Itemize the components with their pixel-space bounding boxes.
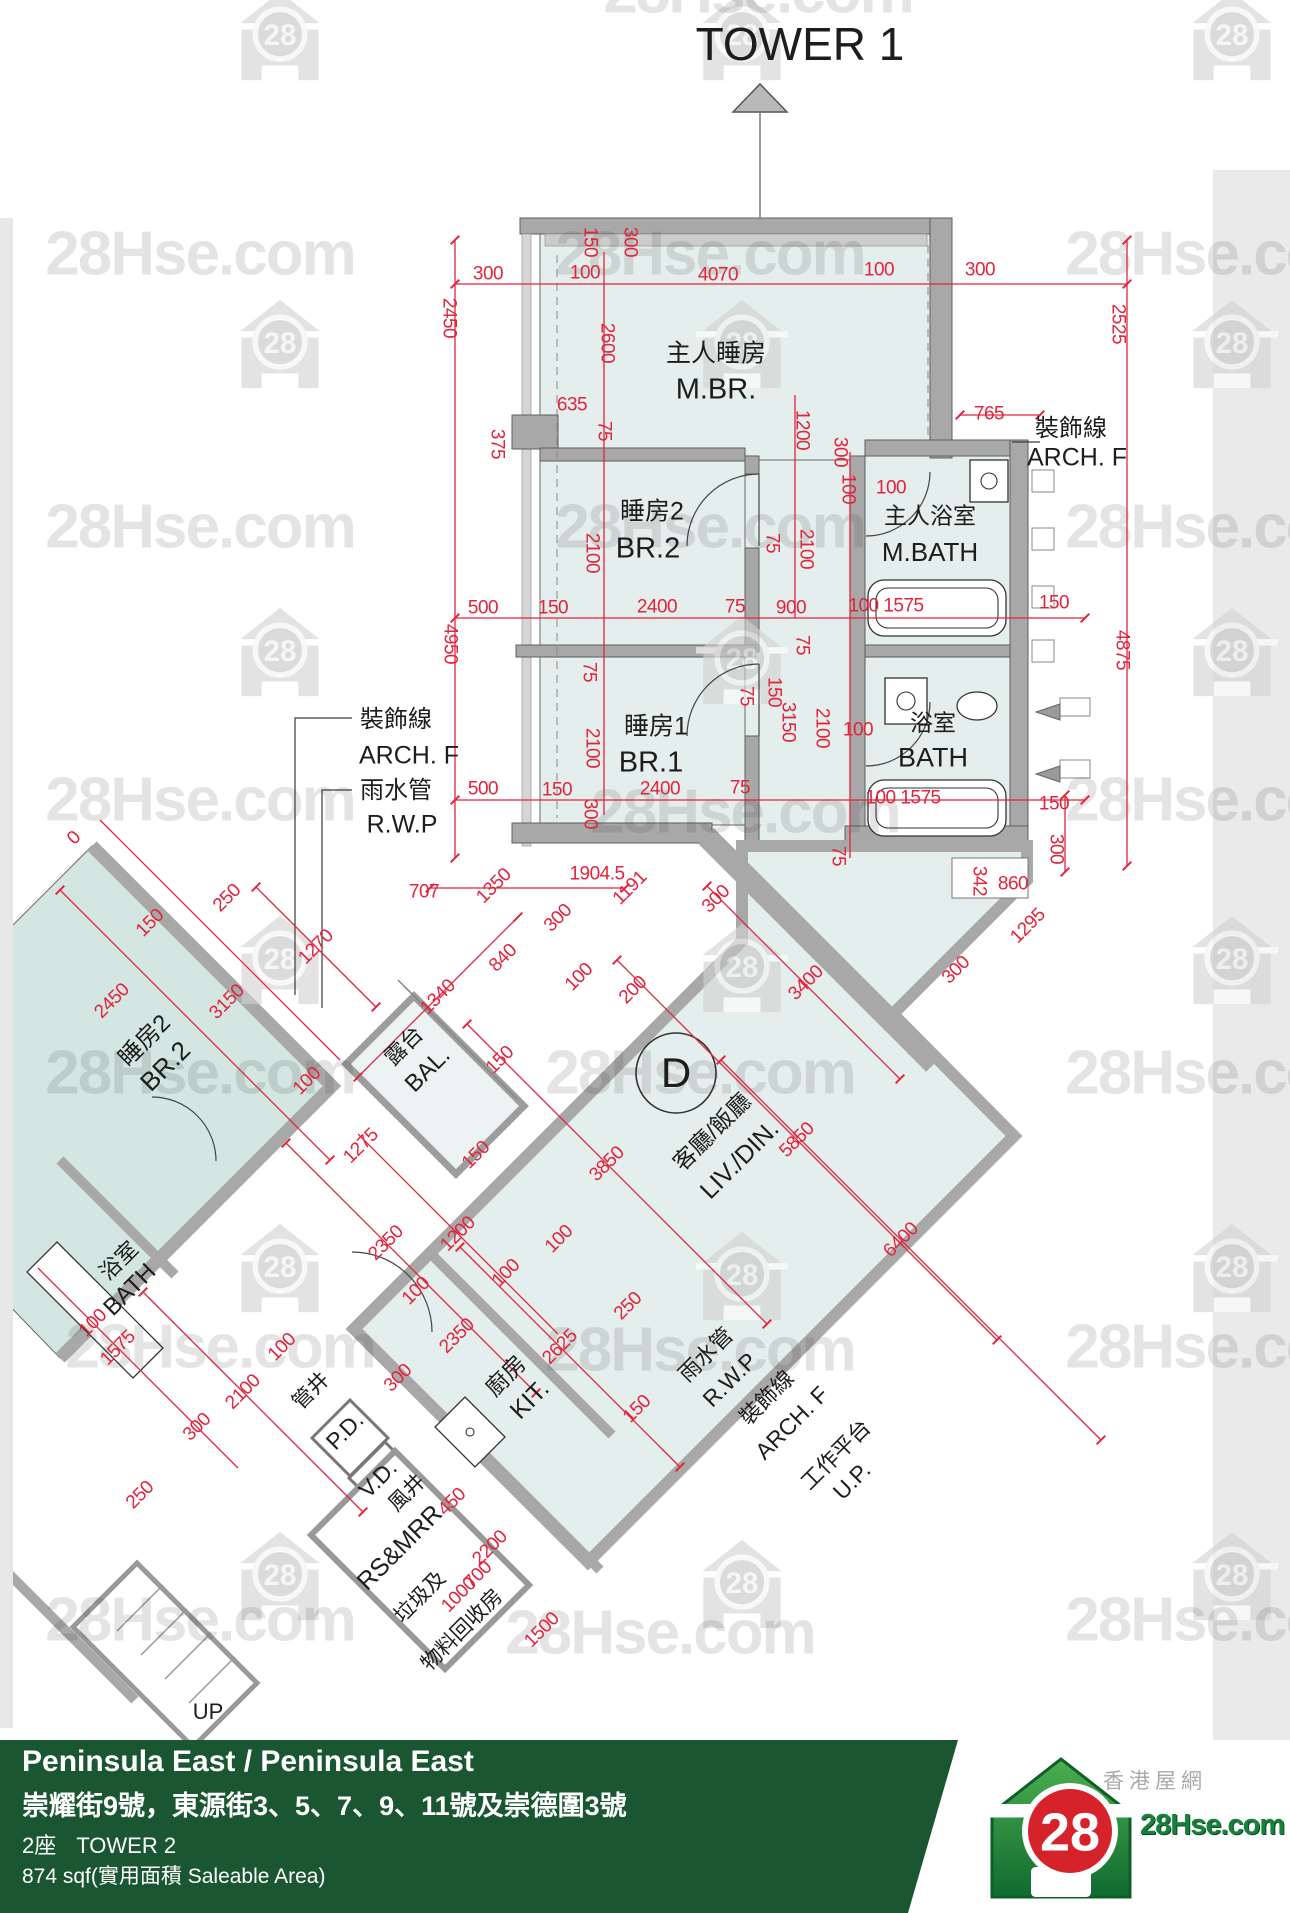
dimension-label: 200 [616, 973, 651, 1008]
watermark-house-logo [1186, 298, 1278, 390]
dimension-label: 300 [939, 953, 974, 988]
watermark-house-logo [1186, 914, 1278, 1006]
plan-text-label: 工作平台 [797, 1416, 875, 1494]
watermark-house-logo [1186, 0, 1278, 82]
watermark-text: 28Hse.com [555, 219, 864, 290]
plan-text-label: 裝飾線 [1035, 417, 1107, 441]
plan-text-label: 物料回收房 [417, 1585, 506, 1674]
dimension-label: 1000 [438, 1574, 480, 1616]
plan-text-label: 露台 [381, 1023, 428, 1070]
plan-text-label: 主人浴室 [884, 505, 976, 528]
room-fills [0, 232, 1027, 1562]
watermark-house-logo [234, 914, 326, 1006]
dimension-label: 2350 [436, 1315, 478, 1357]
plan-text-label: 睡房1 [624, 715, 688, 740]
dimension-label: 1200 [437, 1213, 479, 1255]
plan-text-label: RS&MRR [353, 1501, 447, 1595]
dimension-label: 75 [595, 421, 614, 441]
dimension-label: 100 [562, 960, 597, 995]
dimension-label: 2400 [640, 780, 680, 799]
window-markers [1032, 470, 1090, 782]
plan-text-label: ARCH. F [1027, 446, 1127, 471]
plan-text-label: 睡房2 [620, 500, 684, 525]
dimension-label: 765 [974, 405, 1004, 424]
watermark-text: 28Hse.com [505, 1598, 814, 1669]
dimension-label: 300 [473, 265, 503, 284]
dimension-label: 150 [133, 906, 168, 941]
dimension-label: 5850 [776, 1119, 818, 1161]
dimension-label: 2100 [222, 1371, 264, 1413]
dimension-label: 1191 [610, 868, 651, 909]
dimension-label: 4875 [1113, 630, 1132, 670]
dimension-label: 100 [542, 1222, 577, 1257]
leader-lines [295, 442, 1040, 1008]
dimension-label: 3150 [206, 981, 248, 1023]
plan-text-label: 裝飾線 [736, 1367, 798, 1429]
watermark-text: 28Hse.com [1065, 1038, 1290, 1109]
plan-text-label: R.W.P [367, 813, 438, 838]
plan-text-label: V.D. [355, 1456, 401, 1502]
dimension-label: 342 [970, 866, 989, 896]
dimension-label: 2400 [637, 598, 677, 617]
dimension-label: 500 [468, 780, 498, 799]
dimension-label: 0 [64, 828, 85, 849]
dimension-label: 150 [542, 781, 572, 800]
plan-text-label: TOWER 1 [696, 21, 905, 67]
dimension-label: 75 [730, 779, 750, 798]
plan-text-label: ARCH. F [359, 744, 459, 769]
watermark-house-logo [234, 606, 326, 698]
dimension-label: 300 [621, 227, 640, 257]
dimension-label: 300 [699, 882, 734, 917]
watermark-text: 28Hse.com [545, 1038, 854, 1109]
dimension-label: 1575 [97, 1327, 139, 1369]
dimension-label: 250 [210, 881, 245, 916]
watermark-text: 28Hse.com [45, 1585, 354, 1656]
dimension-label: 250 [611, 1289, 646, 1324]
watermark-text: 28Hse.com [603, 0, 912, 28]
dimension-label: 300 [581, 799, 600, 829]
dimension-label: 100 [839, 474, 858, 504]
dimension-label: 75 [793, 635, 812, 655]
plan-text-label: UP [193, 1701, 224, 1723]
dimension-label: 100 [290, 1064, 325, 1099]
dimension-label: 635 [557, 396, 587, 415]
plan-text-label: M.BR. [676, 376, 757, 405]
plan-text-label: BATH [100, 1260, 161, 1321]
dimension-label: 700 [461, 1558, 496, 1593]
watermark-house-logo [696, 0, 788, 82]
plan-text-label: 客廳/飯廳 [669, 1089, 755, 1175]
left-edge-band [0, 218, 13, 1728]
plan-text-label: 浴室 [96, 1238, 143, 1285]
dimension-label: 100 [265, 1330, 300, 1365]
plan-text-label: 浴室 [910, 712, 956, 735]
dimension-label: 100 [876, 479, 906, 498]
site-logo[interactable]: 香港屋網 28 28Hse.com [985, 1745, 1290, 1913]
watermark-text: 28Hse.com [1065, 765, 1290, 836]
dimension-label: 3150 [779, 702, 798, 742]
plan-text-label: ARCH. F [751, 1382, 832, 1463]
plan-text-label: 雨水管 [675, 1324, 737, 1386]
dimension-label: 150 [581, 227, 600, 257]
dimension-label: 2625 [539, 1326, 581, 1368]
watermark-house-logo [1186, 1530, 1278, 1622]
watermark-house-logo [1186, 1222, 1278, 1314]
dashed-lines [557, 245, 928, 818]
dimension-label: 300 [180, 1410, 215, 1445]
watermark-layer: 28Hse.com28Hse.com28Hse.com28Hse.com28Hs… [0, 0, 1290, 1913]
plan-text-label: BATH [898, 745, 968, 772]
watermark-text: 28Hse.com [45, 765, 354, 836]
walls [0, 218, 1028, 1747]
plan-text-label: BR.2 [135, 1036, 194, 1095]
dimension-label: 100 [76, 1306, 111, 1341]
door-swings [152, 472, 930, 1332]
watermark-house-logo [696, 922, 788, 1014]
watermark-text: 28Hse.com [1065, 1585, 1290, 1656]
plan-text-label: R.W.P [699, 1349, 761, 1411]
dimension-label: 2450 [91, 980, 133, 1022]
dimension-label: 250 [123, 1478, 158, 1513]
dimension-label: 300 [381, 1361, 416, 1396]
dimension-label: 150 [483, 1043, 518, 1078]
plan-text-label: U.P. [829, 1458, 875, 1504]
bathroom-fixtures [27, 460, 1008, 1467]
dimension-label: 1350 [473, 865, 515, 907]
dimension-label: 6400 [880, 1219, 922, 1261]
watermark-text: 28Hse.com [1065, 492, 1290, 563]
watermark-text: 28Hse.com [545, 1315, 854, 1386]
watermark-text: 28Hse.com [555, 492, 864, 563]
dimension-label: 1275 [340, 1125, 382, 1167]
dimension-label: 4070 [698, 266, 738, 285]
dimension-label: 100 [489, 1256, 524, 1291]
dimension-label: 2100 [583, 728, 602, 768]
plan-text-label: 主人睡房 [666, 342, 766, 367]
dimension-label: 900 [776, 599, 806, 618]
plan-labels-layer: 3001004070100300150300245025252600635751… [0, 0, 1290, 1913]
plan-text-label: M.BATH [882, 539, 978, 565]
logo-site-name: 28Hse.com [1140, 1809, 1284, 1842]
dimension-label: 500 [468, 599, 498, 618]
dimension-label: 150 [538, 599, 568, 618]
dimension-label: 840 [486, 941, 521, 976]
watermark-text: 28Hse.com [45, 219, 354, 290]
dimension-label: 2350 [365, 1222, 407, 1264]
dimension-label: 2600 [598, 323, 617, 363]
dimension-label: 300 [965, 261, 995, 280]
floorplan-page: 28 [0, 0, 1290, 1913]
plan-text-label: 垃圾及 [390, 1567, 449, 1626]
dimension-label: 100 [864, 261, 894, 280]
watermark-house-logo [234, 0, 326, 82]
dimension-label: 860 [998, 875, 1028, 894]
tower-info: 2座TOWER 2 [22, 1828, 176, 1860]
saleable-area: 874 sqf(實用面積 Saleable Area) [22, 1860, 325, 1890]
logo-house-icon: 28 [985, 1753, 1137, 1903]
dimension-label: 375 [488, 429, 507, 459]
dimension-label: 100 1575 [865, 789, 940, 808]
right-edge-band [1213, 170, 1290, 1740]
watermark-house-logo [1186, 606, 1278, 698]
dimension-label: 1295 [1007, 905, 1049, 947]
watermark-text: 28Hse.com [45, 1038, 354, 1109]
dimension-label: 100 [843, 721, 873, 740]
plan-text-label: D [661, 1052, 691, 1094]
dimension-label: 1270 [295, 926, 337, 968]
dimension-label: 2450 [440, 298, 459, 338]
footer-bar: Peninsula East / Peninsula East 崇耀街9號，東源… [0, 1740, 1290, 1913]
plan-text-label: BR.1 [619, 749, 683, 778]
plan-text-label: 裝飾線 [360, 708, 432, 732]
plan-text-label: 風井 [385, 1471, 430, 1516]
dimension-label: 100 [570, 264, 600, 283]
watermark-text: 28Hse.com [590, 777, 899, 848]
dimension-label: 75 [763, 533, 782, 553]
plan-text-label: P.D. [322, 1408, 368, 1454]
dimension-label: 2100 [583, 533, 602, 573]
estate-name: Peninsula East / Peninsula East [22, 1745, 474, 1779]
dimension-label: 1500 [521, 1609, 563, 1651]
dimension-label: 450 [435, 1485, 470, 1520]
dimension-label: 3850 [586, 1143, 628, 1185]
plan-text-label: 廚房 [482, 1352, 531, 1401]
plan-text-label: BR.2 [616, 535, 680, 564]
plan-text-label: 睡房2 [115, 1011, 175, 1071]
dimension-label: 150 [620, 1392, 655, 1427]
dimension-label: 2525 [1109, 304, 1128, 344]
dimension-label: 75 [725, 598, 745, 617]
plan-text-label: KIT. [506, 1376, 554, 1424]
watermark-text: 28Hse.com [1065, 1312, 1290, 1383]
dimension-label: 4950 [441, 624, 460, 664]
watermark-house-logo [696, 1230, 788, 1322]
dimension-label: 75 [737, 686, 756, 706]
dimension-label: 150 [765, 677, 784, 707]
watermark-house-logo [696, 614, 788, 706]
dimension-label: 707 [409, 883, 439, 902]
watermark-house-logo [696, 298, 788, 390]
dimension-label: 300 [541, 901, 576, 936]
tower-arrow [733, 84, 787, 218]
watermark-text: 28Hse.com [65, 1312, 374, 1383]
plan-text-label: 管井 [289, 1369, 334, 1414]
dimension-label: 75 [580, 662, 599, 682]
logo-badge-28: 28 [1040, 1803, 1100, 1863]
estate-address: 崇耀街9號，東源街3、5、7、9、11號及崇德圍3號 [22, 1784, 627, 1823]
watermark-house-logo [234, 1530, 326, 1622]
red-dimension-lines [38, 240, 1127, 1512]
watermark-house-logo [696, 1538, 788, 1630]
unit-circle [636, 1033, 716, 1113]
dimension-label: 1200 [793, 410, 812, 450]
dimension-label: 1340 [417, 976, 459, 1018]
dimension-label: 3400 [785, 962, 827, 1004]
dimension-label: 2100 [813, 708, 832, 748]
tower-info-en: TOWER 2 [76, 1833, 176, 1858]
dimension-label: 2200 [469, 1527, 511, 1569]
dimension-label: 300 [831, 437, 850, 467]
dimension-label: 75 [829, 846, 848, 866]
dimension-label: 100 [399, 1274, 434, 1309]
plan-text-label: BAL. [401, 1043, 455, 1097]
dimension-linework [0, 0, 1290, 1913]
plan-text-label: 雨水管 [360, 779, 432, 803]
watermark-text: 28Hse.com [45, 492, 354, 563]
dimension-label: 150 [1039, 594, 1069, 613]
dimension-label: 1904.5 [569, 865, 624, 884]
dimension-label: 150 [1039, 795, 1069, 814]
tower-info-zh: 2座 [22, 1833, 56, 1858]
dimension-label: 100 1575 [848, 597, 923, 616]
dimension-label: 300 [1047, 834, 1066, 864]
dimension-label: 2100 [797, 529, 816, 569]
watermark-text: 28Hse.com [1065, 219, 1290, 290]
floorplan-drawing: 28 [0, 0, 1290, 1913]
dimension-label: 150 [459, 1138, 494, 1173]
watermark-house-logo [234, 298, 326, 390]
watermark-house-logo [234, 1222, 326, 1314]
plan-text-label: LIV./DIN. [696, 1116, 784, 1204]
